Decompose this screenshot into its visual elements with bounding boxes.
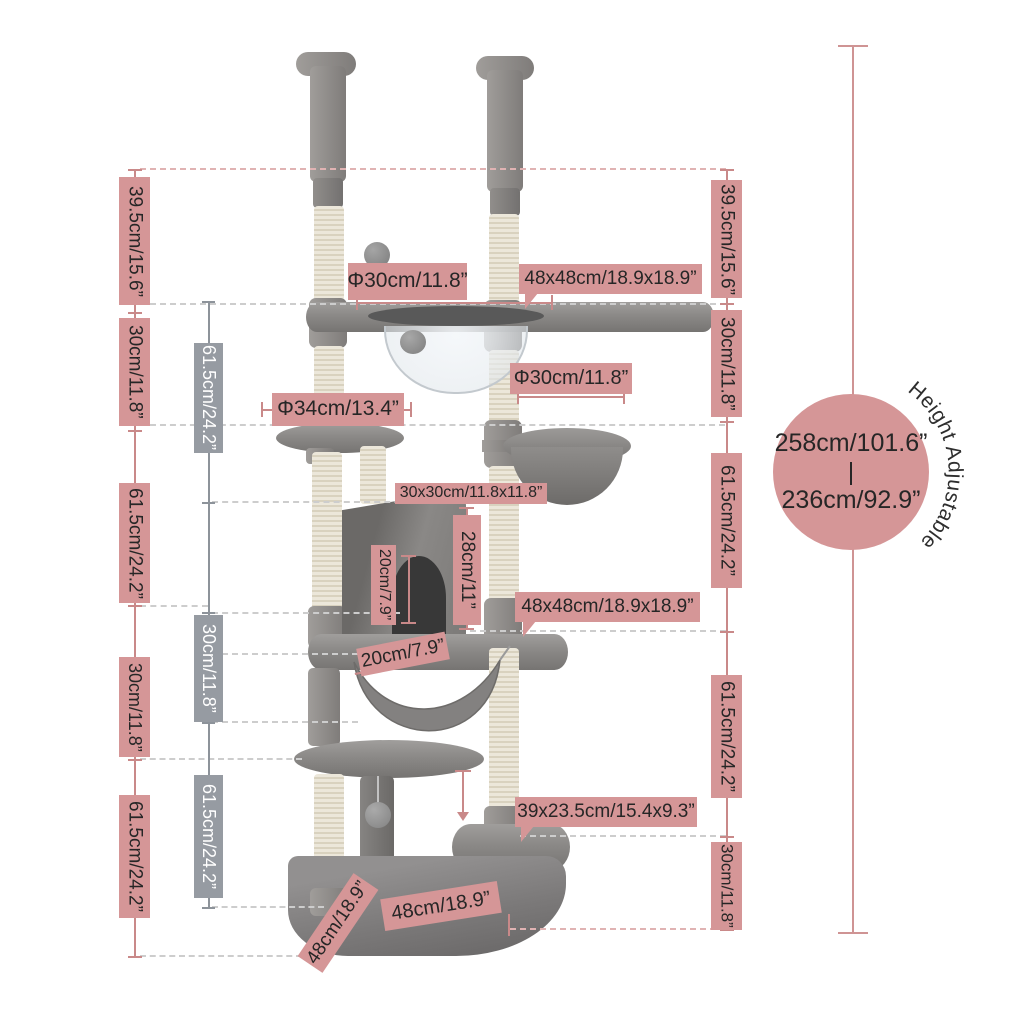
dim-right-1: 39.5cm/15.6” (711, 180, 742, 298)
dashed-guide-line (212, 653, 358, 655)
callout-basket-diameter: Φ30cm/11.8” (510, 363, 632, 394)
tick (128, 759, 142, 761)
callout-door-height: 20cm/7.9” (371, 545, 396, 625)
dim-inner-1: 61.5cm/24.2” (194, 343, 223, 453)
callout-perch-diameter: Φ34cm/13.4” (272, 393, 404, 426)
tick (508, 914, 510, 936)
tick (202, 612, 215, 614)
dim-left-5: 61.5cm/24.2” (119, 795, 150, 918)
tick (401, 555, 416, 557)
tick (410, 402, 412, 417)
right-post-collar (490, 188, 520, 216)
left-post-collar (313, 178, 343, 208)
left-post-upper-plush (310, 66, 346, 182)
tick (720, 836, 734, 838)
tick (128, 430, 142, 432)
dashed-guide-line (140, 605, 208, 607)
tick (720, 421, 734, 423)
step-arrow-shaft (462, 770, 464, 814)
middle-platform (294, 740, 484, 778)
right-post-sisal-4 (489, 648, 519, 812)
right-post-sisal-upper (489, 214, 519, 304)
dim-inner-2: 30cm/11.8” (194, 615, 223, 722)
measure-top-hole (357, 302, 553, 304)
height-badge: 258cm/101.6” | 236cm/92.9” (773, 394, 929, 550)
dashed-guide-line (140, 168, 726, 170)
tick (838, 45, 868, 47)
tick (128, 605, 142, 607)
callout-middle-platform-size: 48x48cm/18.9x18.9” (515, 592, 700, 622)
callout-top-platform-size: 48x48cm/18.9x18.9” (519, 264, 702, 294)
height-min: 236cm/92.9” (782, 486, 921, 515)
tick (202, 907, 215, 909)
callout-step-size: 39x23.5cm/15.4x9.3” (515, 797, 697, 827)
tick (202, 722, 215, 724)
dashed-guide-line (212, 906, 324, 908)
tick (128, 312, 142, 314)
dashed-guide-line (140, 955, 302, 957)
measure-door-height (408, 556, 410, 624)
dim-right-5: 30cm/11.8” (711, 842, 742, 930)
height-divider: | (848, 458, 855, 487)
dim-right-3: 61.5cm/24.2” (711, 453, 742, 588)
tick (261, 402, 263, 417)
tick (202, 502, 215, 504)
tick (720, 303, 734, 305)
dim-right-2: 30cm/11.8” (711, 310, 742, 417)
dashed-guide-line (520, 835, 726, 837)
dashed-guide-line (510, 928, 726, 930)
tick (551, 295, 553, 310)
callout-tail (521, 826, 534, 842)
dim-right-4: 61.5cm/24.2” (711, 675, 742, 798)
tick (720, 169, 734, 171)
callout-condo-footprint: 30x30cm/11.8x11.8” (395, 483, 547, 504)
height-max: 258cm/101.6” (775, 429, 928, 458)
left-lower-pole (308, 668, 340, 746)
callout-top-hole-diameter: Φ30cm/11.8” (348, 263, 467, 300)
dim-inner-3: 61.5cm/24.2” (194, 775, 223, 898)
step-arrow-head (457, 812, 469, 821)
tick (459, 628, 474, 630)
dashed-guide-line (140, 758, 302, 760)
tick (401, 622, 416, 624)
top-platform-hole (368, 306, 544, 326)
dim-left-3: 61.5cm/24.2” (119, 483, 150, 603)
measure-basket (518, 396, 625, 398)
pom-in-dome (400, 330, 426, 354)
dashed-guide-line (470, 630, 726, 632)
callout-tail (523, 621, 536, 637)
product-dimension-diagram: 258cm/101.6” | 236cm/92.9” Height Adjust… (0, 0, 1024, 1024)
dashed-guide-line (140, 424, 725, 426)
tick (838, 932, 868, 934)
tick (459, 507, 474, 509)
tick (202, 301, 215, 303)
hanging-ball-toy (365, 802, 391, 828)
left-post-sisal-upper (314, 206, 344, 302)
callout-tail (525, 293, 538, 309)
callout-condo-height: 28cm/11” (453, 515, 481, 625)
tick (720, 631, 734, 633)
condo-back-pole (360, 446, 386, 504)
dim-left-1: 39.5cm/15.6” (119, 177, 150, 305)
dim-left-2: 30cm/11.8” (119, 318, 150, 426)
tick (128, 956, 142, 958)
tick (128, 169, 142, 171)
dim-left-4: 30cm/11.8” (119, 657, 150, 757)
right-post-upper-plush (487, 70, 523, 192)
dashed-guide-line (212, 721, 358, 723)
left-post-sisal-lower (312, 452, 342, 610)
